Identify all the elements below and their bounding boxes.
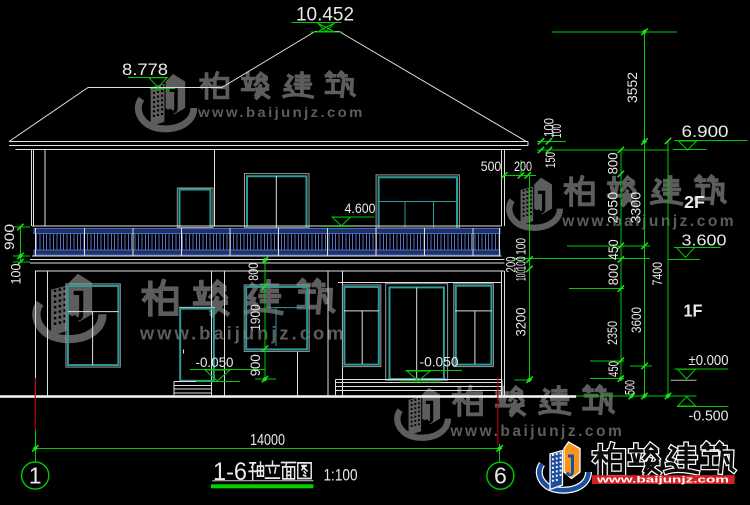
svg-text:1-6: 1-6 bbox=[213, 458, 247, 486]
svg-text:1900: 1900 bbox=[247, 304, 263, 331]
svg-text:10.452: 10.452 bbox=[296, 5, 354, 26]
svg-text:3200: 3200 bbox=[513, 307, 529, 336]
svg-text:6.900: 6.900 bbox=[682, 122, 729, 141]
svg-text:100: 100 bbox=[7, 263, 23, 284]
svg-text:-0.500: -0.500 bbox=[689, 409, 729, 425]
svg-text:1: 1 bbox=[29, 463, 42, 489]
svg-text:4.600: 4.600 bbox=[345, 200, 376, 216]
svg-text:800: 800 bbox=[605, 264, 621, 286]
svg-text:100: 100 bbox=[513, 256, 529, 270]
svg-text:100: 100 bbox=[513, 238, 529, 255]
svg-text:2F: 2F bbox=[684, 192, 705, 212]
svg-text:2050: 2050 bbox=[605, 192, 621, 224]
svg-text:-0.050: -0.050 bbox=[196, 354, 234, 370]
svg-text:6: 6 bbox=[494, 463, 507, 489]
svg-text:14000: 14000 bbox=[250, 432, 285, 449]
svg-text:8.778: 8.778 bbox=[122, 60, 168, 79]
svg-text:200: 200 bbox=[514, 158, 532, 174]
svg-text:450: 450 bbox=[605, 361, 621, 377]
svg-text:7400: 7400 bbox=[649, 262, 665, 286]
svg-text:100: 100 bbox=[548, 124, 564, 138]
svg-text:500: 500 bbox=[622, 380, 638, 395]
svg-text:3300: 3300 bbox=[627, 192, 643, 224]
svg-text:1:100: 1:100 bbox=[324, 466, 358, 484]
svg-text:3.600: 3.600 bbox=[682, 233, 727, 250]
svg-text:900: 900 bbox=[1, 224, 17, 250]
svg-text:3600: 3600 bbox=[628, 307, 644, 333]
svg-text:450: 450 bbox=[605, 239, 621, 260]
svg-text:900: 900 bbox=[247, 354, 263, 376]
svg-text:3552: 3552 bbox=[624, 72, 640, 103]
svg-text:800: 800 bbox=[605, 152, 621, 174]
svg-text:100: 100 bbox=[513, 270, 529, 281]
svg-text:±0.000: ±0.000 bbox=[689, 353, 729, 369]
svg-text:800: 800 bbox=[245, 263, 261, 281]
svg-text:www.baijunjz.com: www.baijunjz.com bbox=[595, 475, 729, 486]
svg-text:-0.050: -0.050 bbox=[420, 354, 459, 370]
svg-text:500: 500 bbox=[481, 158, 502, 174]
svg-text:150: 150 bbox=[542, 152, 558, 168]
svg-text:1F: 1F bbox=[684, 301, 703, 321]
svg-text:2350: 2350 bbox=[604, 321, 620, 345]
